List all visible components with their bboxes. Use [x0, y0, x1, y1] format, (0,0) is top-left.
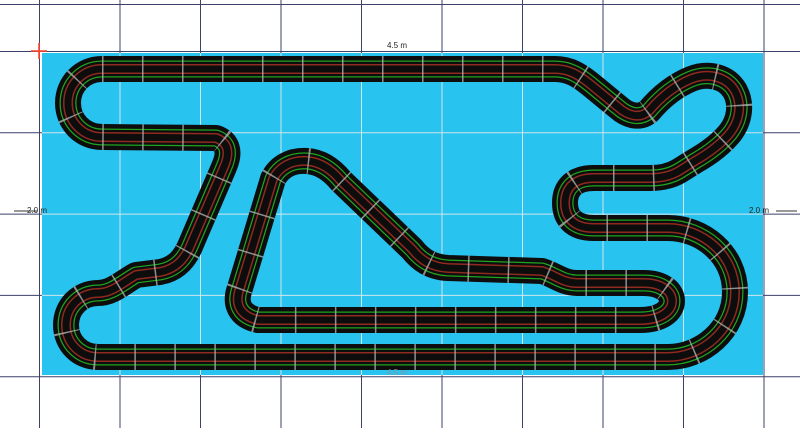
dimension-label-top: 4.5 m — [387, 41, 407, 50]
dimension-label-left: 2.0 m — [27, 206, 47, 215]
dimension-label-bottom: 4.5 m — [387, 368, 407, 377]
dimension-label-right: 2.0 m — [749, 206, 769, 215]
